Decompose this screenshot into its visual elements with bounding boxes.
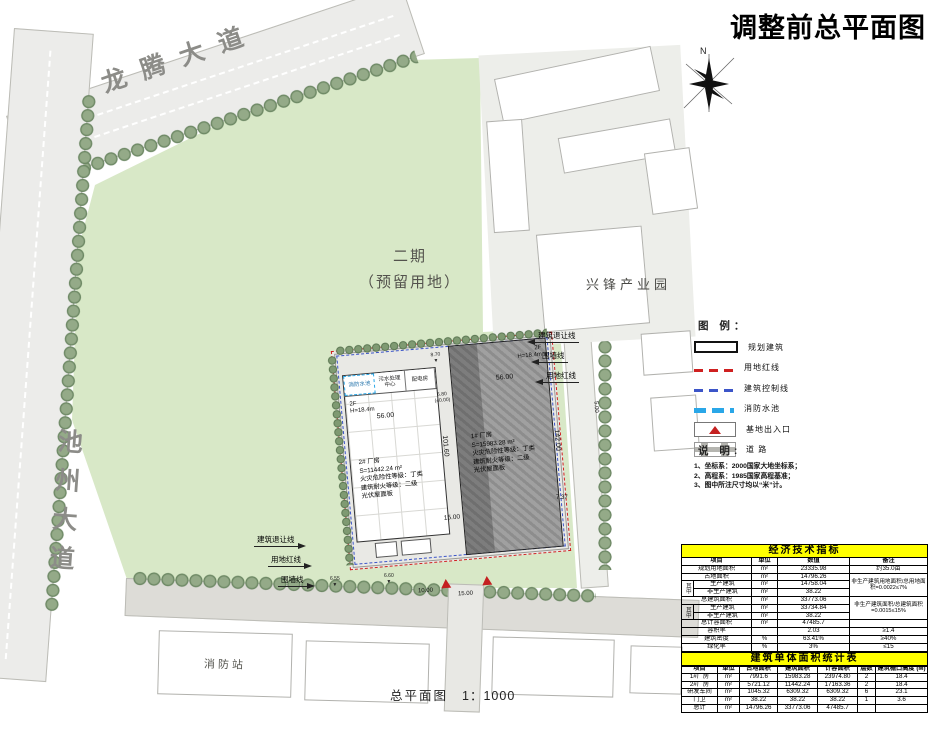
legend-item-fire-pool: 消防水池 [694, 399, 914, 420]
leader-setback-line: 建筑退让线 [524, 330, 579, 343]
factory-2-note: 2# 厂房 S=11442.24 m² 火灾危险性等级：丁类 建筑耐火等级：二级… [358, 454, 424, 502]
notes-panel: 说 明: 1、坐标系：2000国家大地坐标系； 2、高程系：1985国家高程基准… [694, 443, 919, 491]
city-block [629, 645, 682, 694]
level-mark: 8.70▼ [430, 353, 441, 365]
planned-building-icon [694, 341, 738, 353]
economic-indicators-table: 经济技术指标项目单位数值备注规划用地面积m²23335.98约35.0亩占地面积… [681, 544, 927, 667]
dim-15: 15.00 [458, 591, 473, 598]
factory-1-note: 1# 厂房 S=15983.28 m² 火灾危险性等级：丁类 建筑耐火等级：二级… [471, 428, 537, 476]
arrow-right-icon [307, 583, 318, 589]
drawing-caption: 总平面图1：1000 [390, 685, 515, 704]
legend-title: 图 例： [698, 318, 914, 333]
dim-7-37: 7.37 [556, 495, 568, 501]
red-boundary-line-icon [694, 369, 734, 372]
leader-red-line: 用地红线 [532, 370, 579, 383]
fire-station-label: 消防站 [204, 655, 246, 672]
legend-panel: 图 例： 规划建筑 用地红线 建筑控制线 消防水池 基地出入口 道 路 [694, 318, 914, 460]
building-control-line-icon [694, 389, 734, 392]
note-line: 2、高程系：1985国家高程基准； [694, 472, 919, 482]
industrial-park-label: 兴锋产业园 [586, 274, 671, 293]
site-entrance-marker [482, 576, 493, 586]
legend-item-entrance: 基地出入口 [694, 419, 914, 440]
level-mark: 6.60▼ [384, 574, 394, 585]
leader-fence-line: 围墙线 [278, 574, 318, 587]
legend-item-red-boundary: 用地红线 [694, 358, 914, 379]
dim-56: 56.00 [496, 373, 514, 382]
legend-item-planned-building: 规划建筑 [694, 337, 914, 358]
tree-column [598, 340, 612, 570]
fire-station-block: 消防站 [157, 630, 293, 697]
level-mark: 6.80(±0.00) [434, 392, 451, 404]
site-entrance-icon [694, 422, 736, 437]
small-structure [401, 538, 432, 556]
page-title: 调整前总平面图 [690, 6, 926, 45]
floor-tag: 2FH=18.4m [349, 400, 375, 416]
fire-pool-line-icon [694, 408, 734, 413]
leader-red-line: 用地红线 [268, 554, 315, 567]
level-mark: 6.55▼ [330, 577, 340, 588]
project-site: 消防水池 污水处理中心 配电房 2FH=18.4m 56.00 2# 厂房 S=… [331, 332, 571, 571]
dim-gap-15: 15.00 [444, 513, 461, 521]
notes-title: 说 明: [698, 443, 919, 458]
north-label: N [700, 46, 707, 56]
small-structure [375, 541, 398, 558]
arrow-left-icon [532, 379, 543, 385]
arrow-left-icon [524, 339, 535, 345]
dim-142-00: 142.00 [553, 429, 562, 451]
park-building [486, 119, 530, 233]
fire-pool-room: 消防水池 [343, 373, 376, 396]
park-building [641, 330, 694, 375]
leader-fence-line: 围墙线 [528, 350, 568, 363]
park-building [650, 394, 700, 451]
north-compass-icon: N [680, 48, 738, 114]
note-line: 1、坐标系：2000国家大地坐标系； [694, 462, 919, 472]
site-entrance-marker [441, 579, 452, 589]
drawing-sheet: 调整前总平面图 消防站 消防水池 污水处 [0, 0, 928, 736]
arrow-right-icon [298, 543, 309, 549]
dim-5: 5.00 [593, 401, 600, 413]
arrow-right-icon [304, 563, 315, 569]
sewage-room: 污水处理中心 [374, 371, 406, 394]
power-room: 配电房 [404, 368, 436, 391]
arrow-left-icon [528, 359, 539, 365]
phase2-label: 二期 （预留用地） [330, 244, 490, 296]
dim-10: 10.00 [418, 588, 433, 595]
dim-56: 56.00 [376, 412, 394, 421]
park-building [644, 147, 698, 215]
building-area-table: 建筑单体面积统计表项目单位占地面积建筑面积计容面积层数建筑檐口高度 (M)1#厂… [681, 652, 927, 713]
note-line: 3、图中所注尺寸均以“米”计。 [694, 481, 919, 491]
leader-setback-line: 建筑退让线 [254, 534, 309, 547]
lane-line [5, 51, 52, 659]
road-south [125, 578, 700, 638]
legend-item-control-line: 建筑控制线 [694, 378, 914, 399]
